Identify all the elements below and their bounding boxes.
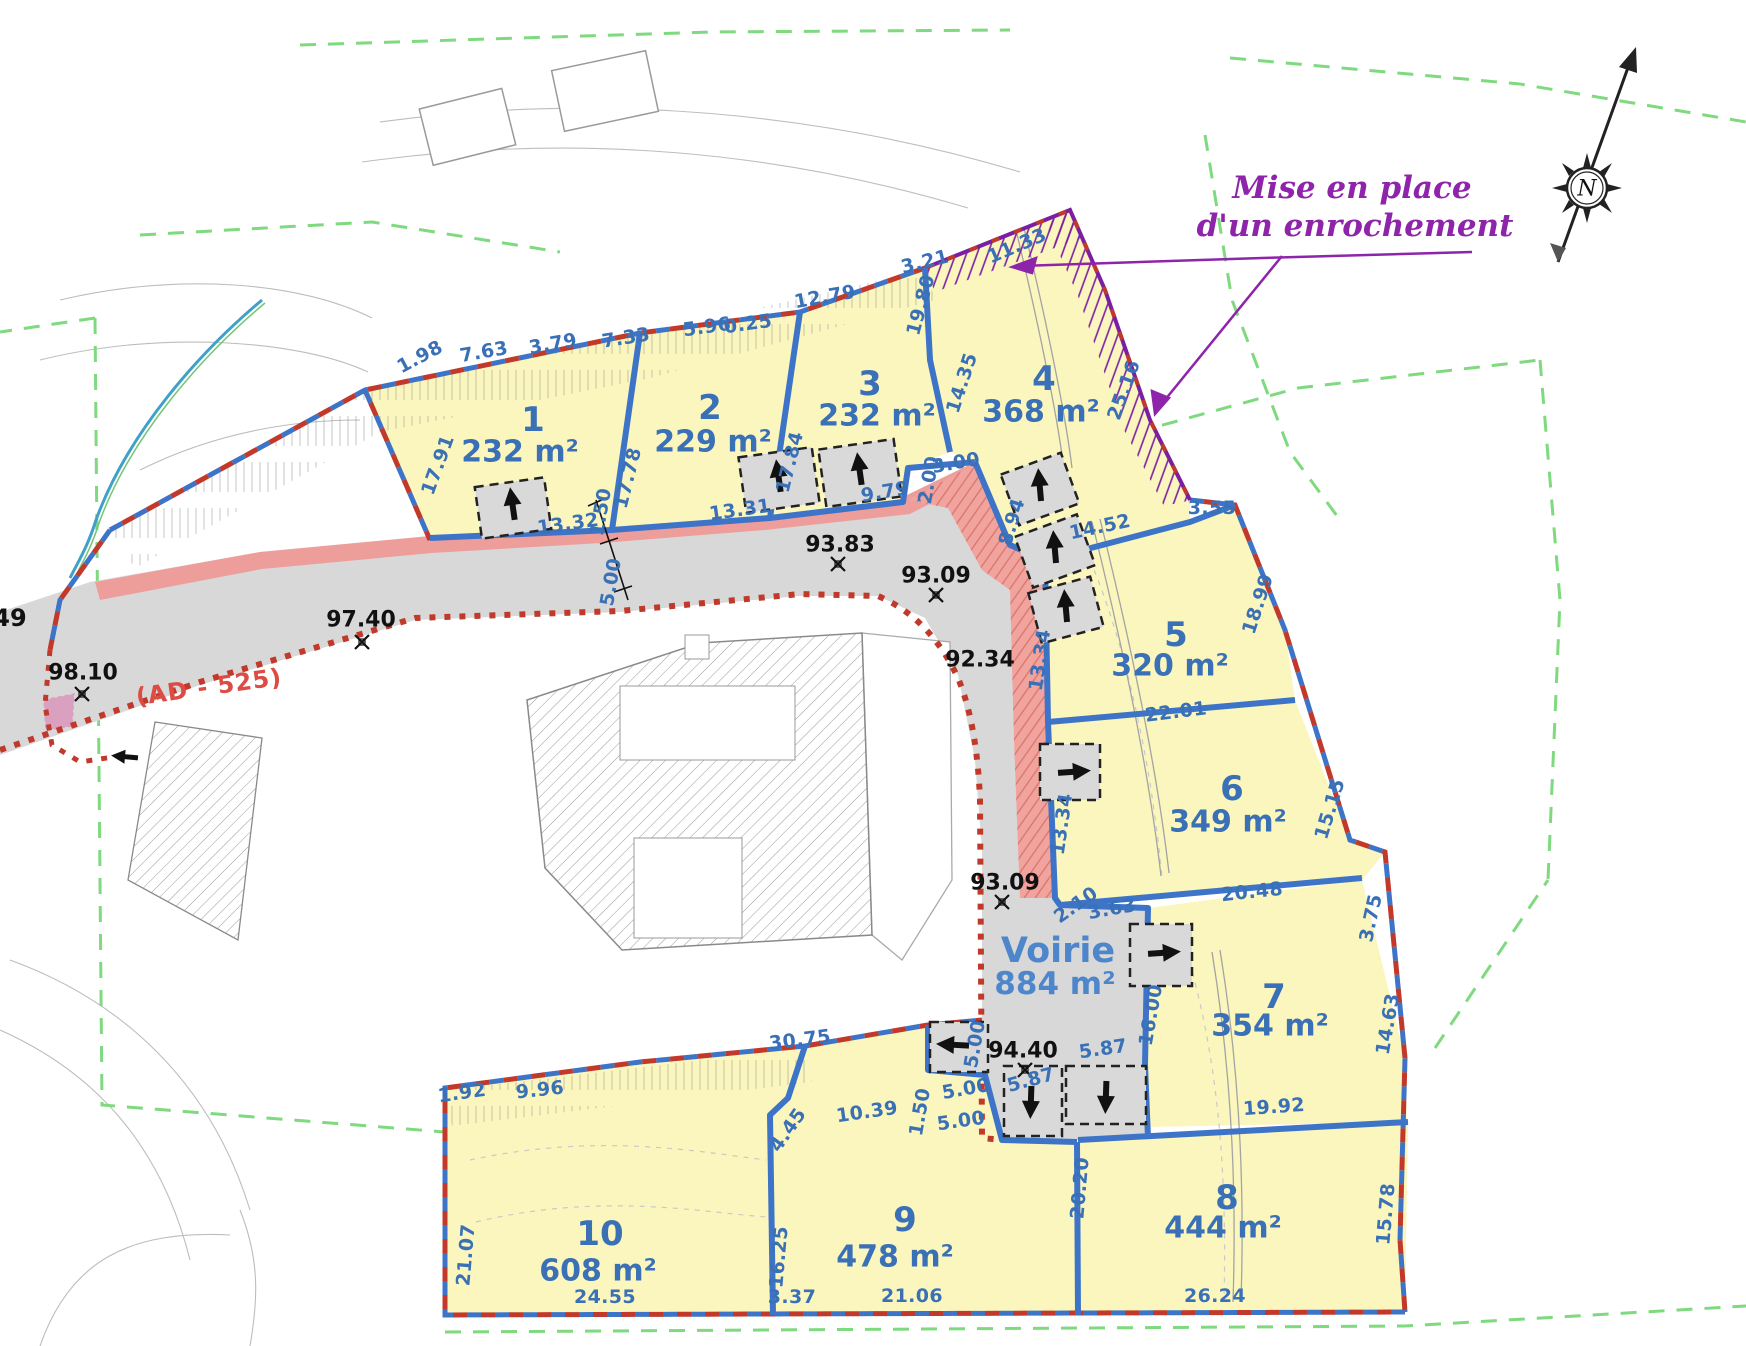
dimension-label: 19.92 [1242,1094,1305,1120]
lot-4-number: 4 [1032,359,1056,399]
elevation-92-34: 92.34 [945,648,1015,673]
annotation-line-1: Mise en place [1232,170,1471,206]
compass-rose [1550,47,1637,262]
lot-6-area: 349 m² [1169,805,1286,840]
site-plan: 1 232 m² 2 229 m² 3 232 m² 4 368 m² 5 32… [0,0,1746,1346]
lot-2-number: 2 [698,388,722,428]
dimension-label: 3.37 [768,1286,816,1308]
voirie-area: 884 m² [994,966,1115,1002]
dimension-label: 3.55 [1188,497,1236,519]
lot-9-number: 9 [893,1200,917,1240]
lot-8-area: 444 m² [1164,1211,1281,1246]
lot-9-area: 478 m² [836,1240,953,1275]
annotation-line-2: d'un enrochement [1197,208,1514,244]
lot-10-area: 608 m² [539,1254,656,1289]
lot-4-area: 368 m² [982,395,1099,430]
lot-7-area: 354 m² [1211,1009,1328,1044]
lot-1-area: 232 m² [461,435,578,470]
dimension-label: 24.55 [574,1286,636,1308]
dimension-label: 21.06 [881,1285,943,1307]
dimension-label: 26.24 [1184,1285,1246,1307]
lot-2-area: 229 m² [654,425,771,460]
compass-north-label: N [1577,177,1596,202]
existing-building [527,633,952,960]
elevation-94-40: 94.40 [988,1039,1058,1064]
building-southwest [128,722,262,940]
elevation-98-10: 98.10 [48,661,118,686]
lot-3-area: 232 m² [818,399,935,434]
elevation-93-09-b: 93.09 [970,871,1040,896]
lot-5-area: 320 m² [1111,649,1228,684]
edge-partial-label: 49 [0,604,27,632]
voirie-label: Voirie [1001,931,1115,971]
lot-10-number: 10 [576,1214,623,1254]
elevation-93-83: 93.83 [805,533,875,558]
lot-6-number: 6 [1220,769,1244,809]
elevation-93-09: 93.09 [901,564,971,589]
elevation-97-40: 97.40 [326,608,396,633]
